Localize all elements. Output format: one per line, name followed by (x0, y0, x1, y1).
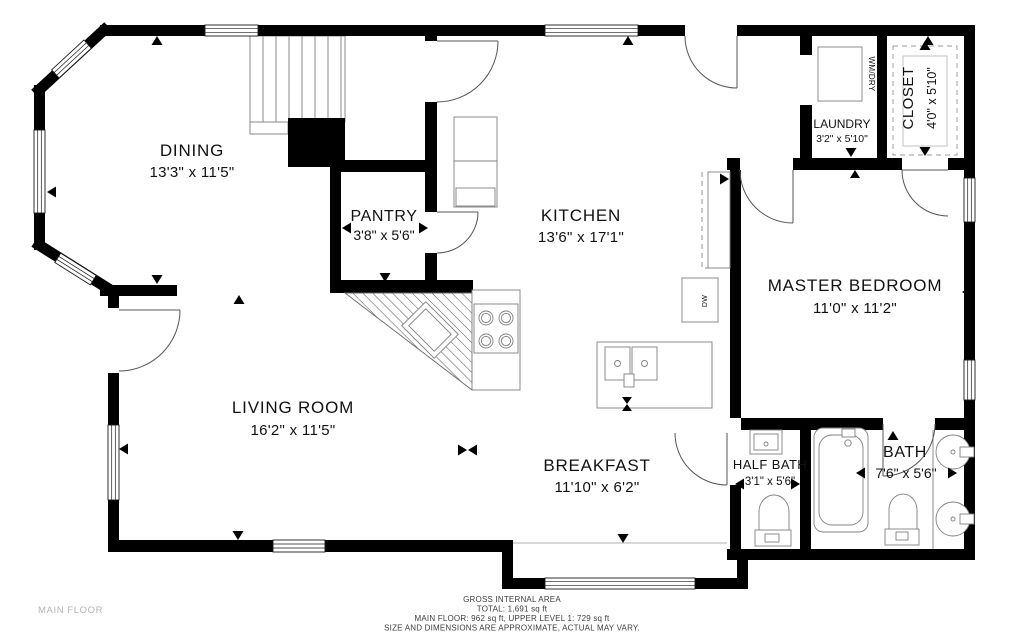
room-label-bath: BATH (883, 444, 927, 461)
half-bath-sink (750, 430, 782, 454)
refrigerator (454, 117, 497, 207)
room-dims-kitchen: 13'6" x 17'1" (538, 229, 624, 246)
bath-toilet (885, 494, 919, 545)
dishwasher-label: DW (702, 295, 709, 307)
corner-counter (345, 293, 472, 390)
room-label-living-room: LIVING ROOM (232, 398, 354, 417)
room-label-half-bath: HALF BATH (733, 457, 807, 472)
window-kitchen-top (545, 25, 638, 36)
kitchen-island (597, 342, 712, 408)
room-dims-closet: 4'0" x 5'10" (925, 67, 939, 129)
room-label-kitchen: KITCHEN (541, 206, 621, 225)
room-dims-bath: 7'6" x 5'6" (875, 465, 936, 481)
window-living-left (108, 425, 119, 500)
room-label-breakfast: BREAKFAST (543, 456, 650, 475)
room-dims-pantry: 3'8" x 5'6" (353, 227, 414, 243)
back-door (685, 36, 737, 88)
master-bedroom-door (740, 170, 793, 223)
floor-plan-page: DW WM/DRY (0, 0, 1024, 639)
window-bay-left (34, 130, 45, 213)
window-bay-lower (55, 253, 96, 285)
bathtub (814, 428, 868, 532)
closet-door (902, 170, 948, 216)
washer-dryer-unit: WM/DRY (818, 47, 876, 101)
window-dining-top (205, 25, 258, 36)
area-breakdown: MAIN FLOOR: 962 sq ft, UPPER LEVEL 1: 72… (415, 614, 611, 623)
room-label-dining: DINING (160, 141, 224, 160)
room-label-laundry: LAUNDRY (813, 117, 870, 131)
floor-plan-drawing: DW WM/DRY (0, 0, 1024, 639)
window-master-upper (964, 178, 975, 222)
stair-hall-door (437, 41, 498, 102)
room-dims-laundry: 3'2" x 5'10" (816, 133, 868, 145)
dishwasher: DW (682, 278, 718, 322)
room-dims-half-bath: 3'1" x 5'6" (745, 476, 795, 488)
washer-dryer-label: WM/DRY (867, 57, 876, 92)
window-living-bottom (273, 540, 325, 552)
room-dims-breakfast: 11'10" x 6'2" (554, 479, 639, 496)
half-bath-toilet (755, 495, 791, 546)
gross-area-title: GROSS INTERNAL AREA (463, 595, 561, 604)
window-master-lower (964, 360, 975, 400)
half-bath-door (675, 433, 727, 485)
doors (119, 36, 948, 485)
room-label-master-bedroom: MASTER BEDROOM (768, 276, 943, 295)
front-door (119, 310, 180, 371)
window-breakfast-bottom (545, 578, 695, 589)
pantry-door (437, 212, 478, 253)
floor-level-label: MAIN FLOOR (38, 605, 103, 616)
room-dims-living-room: 16'2" x 11'5" (250, 422, 335, 439)
room-dims-dining: 13'3" x 11'5" (149, 164, 234, 181)
dimensions-disclaimer: SIZE AND DIMENSIONS ARE APPROXIMATE, ACT… (384, 624, 640, 633)
window-bay-upper (52, 40, 92, 78)
room-dims-master-bedroom: 11'0" x 11'2" (813, 300, 897, 317)
kitchen-wall-counter (702, 172, 730, 268)
room-label-closet: CLOSET (900, 66, 917, 129)
total-area: TOTAL: 1,691 sq ft (477, 605, 548, 614)
footer: MAIN FLOOR GROSS INTERNAL AREA TOTAL: 1,… (38, 595, 640, 633)
range-stove (472, 290, 520, 390)
room-label-pantry: PANTRY (350, 208, 417, 225)
